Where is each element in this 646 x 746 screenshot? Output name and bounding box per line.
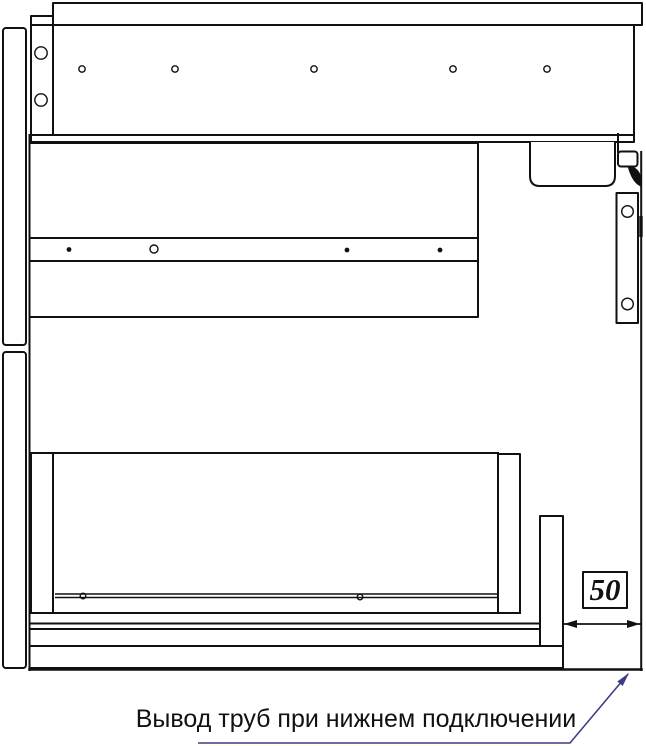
front-facade-panels — [3, 28, 30, 670]
countertop-edge — [53, 3, 642, 25]
dimension-arrowhead-right — [627, 620, 640, 628]
plinth-band — [30, 646, 564, 668]
upper-back-rail — [31, 25, 634, 135]
upper-drawer-side — [30, 143, 479, 317]
rail-step-notch — [31, 16, 53, 25]
bottom-assembly — [30, 516, 642, 670]
slide-pin-1 — [67, 247, 72, 252]
dimension-value: 50 — [590, 572, 621, 607]
top-panel-assembly — [31, 3, 642, 142]
annotation-callout: Вывод труб при нижнем подключении — [136, 673, 629, 743]
dimension-arrowhead-left — [564, 620, 577, 628]
vanity-side-section-drawing: 50 Вывод труб при нижнем подключении — [0, 0, 646, 746]
lower-box-back-panel — [498, 454, 520, 613]
technical-drawing-page: 50 Вывод труб при нижнем подключении — [0, 0, 646, 746]
hanger-hook-tab — [618, 152, 638, 167]
lower-drawer-box — [30, 453, 521, 613]
upper-drawer-box — [30, 143, 479, 317]
back-spacer-bar — [540, 516, 563, 646]
lower-box-front-rail — [31, 453, 53, 613]
lower-drawer-front — [3, 352, 26, 668]
hanger-housing — [530, 142, 615, 186]
annotation-text: Вывод труб при нижнем подключении — [136, 705, 577, 733]
rail-bottom-lip — [31, 135, 634, 142]
slide-pin-3 — [438, 248, 443, 253]
hanger-hook-beak — [628, 166, 641, 186]
dimension-50mm: 50 — [564, 572, 640, 628]
slide-pin-2 — [345, 248, 350, 253]
bracket-plate — [617, 193, 639, 323]
upper-drawer-front — [3, 28, 26, 345]
